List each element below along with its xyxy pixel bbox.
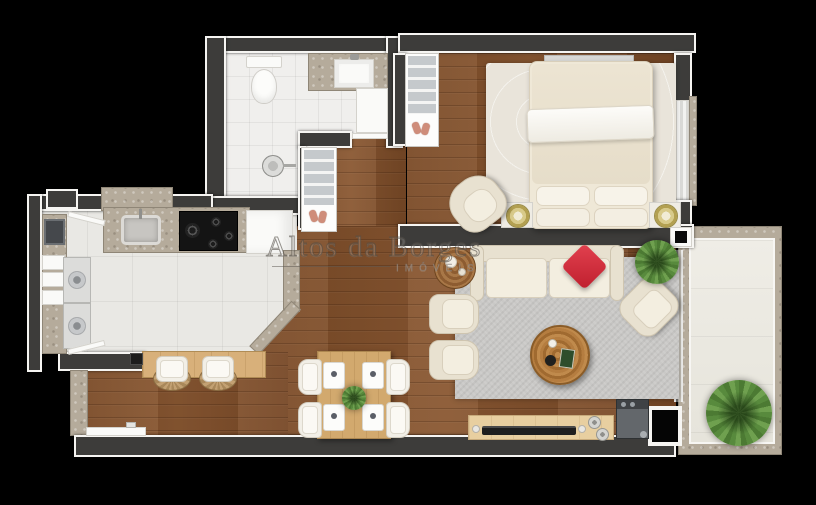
- dryer-machine: [63, 303, 91, 349]
- stove-cooktop: [179, 211, 238, 251]
- dining-chair-3: [386, 359, 410, 395]
- washer-drum: [68, 271, 86, 289]
- hallway-shoe-right: [318, 210, 328, 223]
- watermark-title: Altos da Borges: [266, 231, 482, 264]
- bedroom-shoe-right: [420, 122, 430, 135]
- tv-screen: [482, 426, 576, 435]
- wall-column-balcony-top-core: [675, 231, 687, 243]
- armchair-left-1-seat: [442, 299, 474, 329]
- entry-door-handle: [126, 422, 136, 428]
- kitchen-faucet: [139, 209, 142, 219]
- bar-stool-2: [202, 356, 234, 382]
- bathroom-shower-box: [356, 88, 388, 133]
- bedroom-top-wall: [398, 33, 696, 53]
- hallway-shoe-left: [308, 209, 318, 223]
- laundry-cabinet-1: [42, 255, 65, 270]
- coffee-table-cup: [548, 339, 557, 348]
- kitchen-left-wall: [27, 194, 42, 372]
- floor-plan-scene: Altos da Borges IMÓVEIS: [0, 0, 816, 505]
- dining-chair-2-pad: [302, 406, 318, 434]
- watermark-underline: [272, 266, 390, 267]
- armchair-left-2: [429, 340, 479, 380]
- bar-cabinet-handle: [640, 431, 647, 438]
- sofa-cushion-left: [486, 258, 547, 298]
- toilet-tank: [246, 56, 282, 68]
- place-setting-1-cup: [331, 371, 337, 377]
- bathroom-door: [352, 133, 388, 139]
- bedside-lamp-left: [506, 204, 530, 228]
- burner-large: [185, 223, 200, 238]
- bar-stool-2-pad: [206, 360, 230, 378]
- tv-speaker-right: [578, 425, 586, 433]
- shower-arm: [283, 164, 296, 167]
- bathroom-top-wall: [205, 36, 403, 53]
- laundry-cabinet-2: [42, 272, 65, 287]
- shower-head: [262, 155, 284, 177]
- dining-chair-1: [298, 359, 322, 395]
- bedroom-shoe-closet: [405, 53, 439, 147]
- console-tray-1: [588, 416, 601, 429]
- bedroom-window: [676, 100, 689, 202]
- toilet-bowl: [251, 69, 277, 104]
- armchair-left-1: [429, 294, 479, 334]
- dining-chair-2: [298, 402, 322, 438]
- tv-speaker-left: [472, 425, 480, 433]
- bar-stool-1: [156, 356, 188, 382]
- corner-plant: [635, 240, 679, 284]
- bar-cabinet-knob-2: [630, 402, 635, 407]
- hallway-shoe-cabinet: [301, 147, 337, 232]
- dining-chair-1-pad: [302, 363, 318, 391]
- laundry-cabinet-3: [42, 290, 65, 305]
- burner-small-3: [208, 239, 218, 249]
- burner-small-2: [224, 231, 234, 241]
- dryer-drum: [68, 317, 86, 335]
- bar-cabinet-knob-1: [621, 402, 626, 407]
- dining-chair-3-pad: [390, 363, 406, 391]
- laundry-tub: [44, 219, 65, 245]
- hallway-shoe-shelves: [304, 150, 334, 205]
- entry-door: [86, 427, 146, 436]
- bar-stool-1-pad: [160, 360, 184, 378]
- armchair-left-2-seat: [442, 345, 474, 375]
- balcony-plant: [706, 380, 772, 446]
- dining-chair-4-pad: [390, 406, 406, 434]
- watermark-subtitle: IMÓVEIS: [396, 263, 480, 274]
- bar-cabinet: [616, 399, 649, 439]
- coffee-table: [530, 325, 590, 385]
- bed-pillow-2: [594, 186, 648, 206]
- place-setting-4-cup: [370, 413, 376, 419]
- bed-folded-blanket: [526, 105, 654, 143]
- console-tray-2: [596, 428, 609, 441]
- coffee-table-bowl: [545, 355, 556, 366]
- burner-small-1: [211, 217, 221, 227]
- kitchen-window-left: [46, 189, 78, 209]
- place-setting-3: [362, 362, 384, 389]
- place-setting-1: [323, 362, 345, 389]
- bedside-lamp-right: [654, 204, 678, 228]
- dining-centerpiece-plant: [342, 386, 366, 410]
- place-setting-2-cup: [331, 413, 337, 419]
- bedroom-window-sill: [689, 96, 697, 206]
- kitchen-sink: [121, 215, 161, 245]
- sofa-arm-right: [610, 245, 624, 301]
- bedroom-armchair-seat: [458, 184, 502, 227]
- place-setting-4: [362, 404, 384, 431]
- bathroom-faucet: [350, 54, 359, 60]
- place-setting-2: [323, 404, 345, 431]
- bathroom-bottom-right-wall: [298, 131, 352, 148]
- bedroom-closet-shelves: [408, 56, 436, 114]
- bed-pillow-4: [594, 208, 648, 227]
- bed-pillow-1: [536, 186, 590, 206]
- structural-column: [648, 406, 682, 446]
- washing-machine: [63, 257, 91, 303]
- bed-pillow-3: [536, 208, 590, 227]
- coffee-machine: [130, 353, 143, 365]
- dining-chair-4: [386, 402, 410, 438]
- place-setting-3-cup: [370, 371, 376, 377]
- bathroom-sink: [334, 59, 374, 88]
- bathroom-left-wall: [205, 36, 226, 203]
- coffee-table-book: [559, 348, 576, 369]
